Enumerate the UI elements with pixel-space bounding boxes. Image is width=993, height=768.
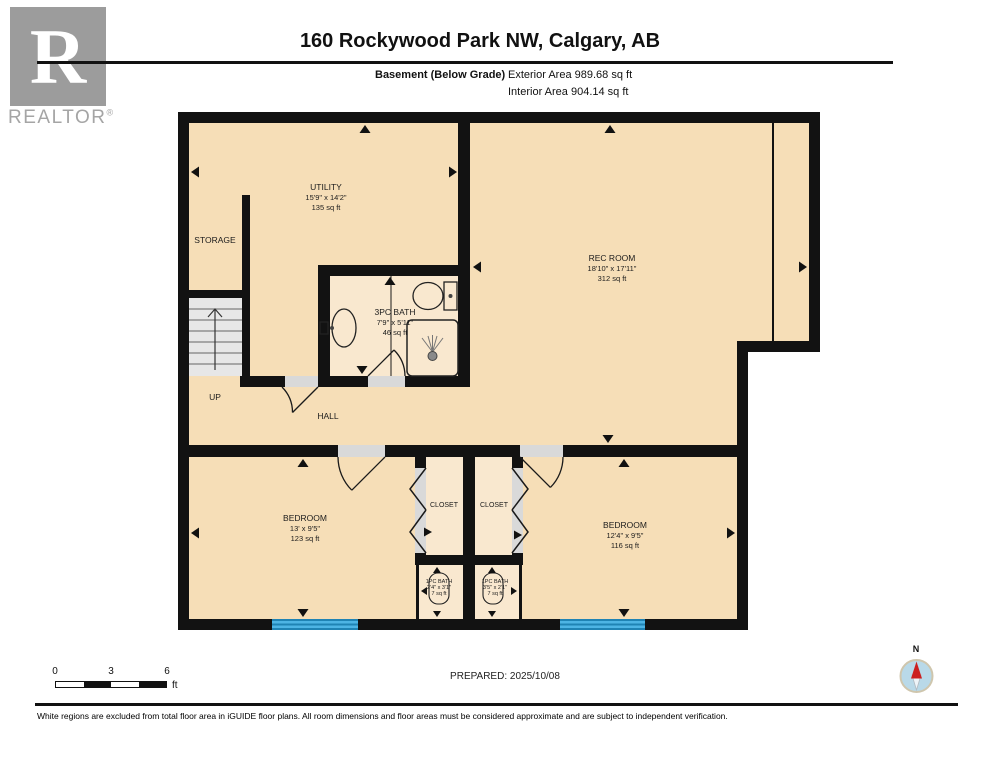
room-label-bath-3pc: 3PC BATH 7'9" x 5'11" 46 sq ft — [375, 307, 416, 339]
room-area: 7 sq ft — [482, 591, 509, 597]
room-dims: 7'9" x 5'11" — [375, 318, 416, 329]
scale-unit-label: ft — [172, 680, 178, 691]
door-swing-icon — [520, 457, 563, 487]
floor-plan: UTILITY 15'9" x 14'2" 135 sq ft STORAGE … — [178, 112, 820, 630]
floor-level-label: Basement (Below Grade) — [375, 69, 505, 81]
room-label-bedroom-left: BEDROOM 13' x 9'5" 123 sq ft — [283, 513, 327, 545]
room-dims: 18'10" x 17'11" — [588, 264, 637, 275]
scale-tick-3: 3 — [108, 666, 114, 677]
plan-annotations — [178, 112, 820, 630]
footer-divider — [35, 703, 958, 706]
room-area: 135 sq ft — [305, 203, 346, 214]
door-swing-icon — [338, 457, 385, 490]
room-name: BEDROOM — [603, 520, 647, 531]
scale-tick-6: 6 — [164, 666, 170, 677]
room-area: 7 sq ft — [426, 591, 453, 597]
room-name: BEDROOM — [283, 513, 327, 524]
stairs-up-label: UP — [209, 392, 221, 402]
sink-icon — [320, 309, 356, 347]
room-label-bath-1pc-right: 1PC BATH 3'5" x 2'1" 7 sq ft — [482, 579, 509, 597]
room-area: 46 sq ft — [375, 328, 416, 339]
bifold-door-icon — [512, 468, 528, 553]
exterior-area-value: Exterior Area 989.68 sq ft — [508, 69, 632, 81]
room-label-storage: STORAGE — [194, 235, 235, 245]
room-label-rec-room: REC ROOM 18'10" x 17'11" 312 sq ft — [588, 253, 637, 285]
header-divider — [37, 61, 893, 64]
registered-mark: ® — [107, 108, 115, 118]
room-label-closet-right: CLOSET — [480, 502, 508, 509]
door-swing-icon — [282, 387, 318, 413]
compass-north-label: N — [913, 644, 920, 654]
scale-tick-0: 0 — [52, 666, 58, 677]
toilet-icon — [413, 282, 457, 310]
brand-word: REALTOR — [8, 107, 107, 128]
bifold-door-icon — [410, 468, 426, 553]
room-label-closet-left: CLOSET — [430, 502, 458, 509]
stairs-up-arrow-icon — [208, 309, 222, 370]
room-name: UTILITY — [305, 182, 346, 193]
compass-icon — [898, 657, 935, 694]
room-area: 312 sq ft — [588, 274, 637, 285]
room-name: REC ROOM — [588, 253, 637, 264]
scale-segment — [56, 682, 84, 687]
scale-segment — [84, 682, 112, 687]
room-label-bath-1pc-left: 1PC BATH 2'4" x 3'1" 7 sq ft — [426, 579, 453, 597]
room-dims: 12'4" x 9'5" — [603, 531, 647, 542]
room-area: 123 sq ft — [283, 534, 327, 545]
room-name: 3PC BATH — [375, 307, 416, 318]
scale-segment — [111, 682, 139, 687]
page-title: 160 Rockywood Park NW, Calgary, AB — [300, 30, 660, 53]
door-swing-icon — [368, 350, 405, 376]
scale-segment — [139, 682, 167, 687]
prepared-date: PREPARED: 2025/10/08 — [450, 671, 560, 682]
room-label-bedroom-right: BEDROOM 12'4" x 9'5" 116 sq ft — [603, 520, 647, 552]
scale-bar — [55, 681, 167, 688]
room-label-hall: HALL — [317, 411, 338, 421]
disclaimer-text: White regions are excluded from total fl… — [37, 711, 728, 721]
interior-area-value: Interior Area 904.14 sq ft — [508, 86, 628, 98]
room-area: 116 sq ft — [603, 541, 647, 552]
realtor-brand-text: REALTOR® — [8, 107, 115, 129]
room-dims: 13' x 9'5" — [283, 524, 327, 535]
floor-plan-page: R REALTOR® 160 Rockywood Park NW, Calgar… — [0, 0, 993, 768]
realtor-logo-letter: R — [30, 18, 86, 96]
room-label-utility: UTILITY 15'9" x 14'2" 135 sq ft — [305, 182, 346, 214]
realtor-logo-icon: R — [10, 7, 106, 106]
room-dims: 15'9" x 14'2" — [305, 193, 346, 204]
